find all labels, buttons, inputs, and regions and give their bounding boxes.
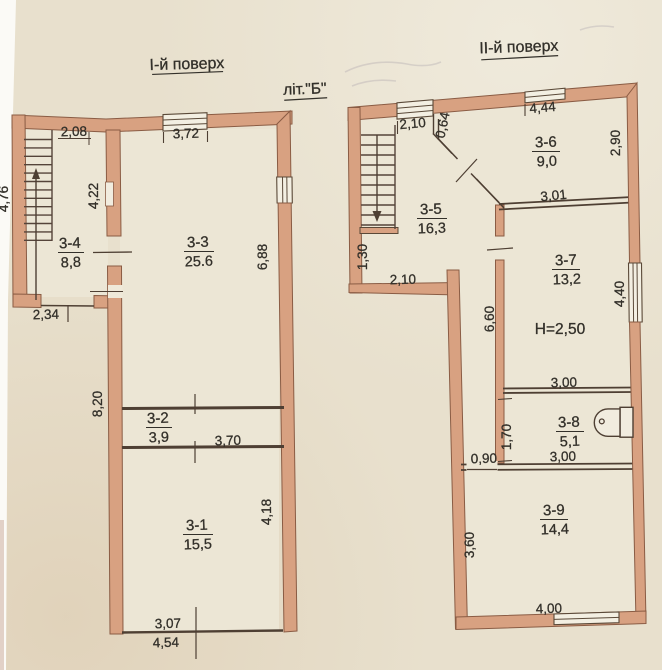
svg-text:2,90: 2,90 (608, 130, 623, 156)
svg-text:3,72: 3,72 (172, 126, 199, 142)
svg-text:6,60: 6,60 (482, 306, 497, 332)
svg-text:14,4: 14,4 (541, 522, 570, 539)
svg-text:4,18: 4,18 (259, 499, 274, 525)
svg-text:4,00: 4,00 (535, 601, 562, 617)
svg-text:4,44: 4,44 (529, 99, 557, 116)
svg-text:H=2,50: H=2,50 (535, 321, 586, 338)
svg-text:3,70: 3,70 (214, 433, 241, 449)
svg-text:3-6: 3-6 (535, 134, 557, 152)
svg-text:2,10: 2,10 (389, 272, 416, 288)
svg-text:2,34: 2,34 (32, 307, 59, 323)
svg-text:3-3: 3-3 (187, 234, 209, 252)
svg-text:3-1: 3-1 (186, 517, 208, 535)
svg-text:6,88: 6,88 (255, 244, 270, 270)
svg-text:літ."Б": літ."Б" (283, 80, 327, 99)
svg-text:25.6: 25.6 (185, 254, 214, 271)
svg-text:3-8: 3-8 (558, 414, 580, 432)
svg-text:3-2: 3-2 (147, 410, 169, 428)
svg-text:3,9: 3,9 (149, 430, 170, 447)
svg-text:3,60: 3,60 (462, 532, 477, 558)
svg-text:4,22: 4,22 (86, 183, 101, 209)
svg-text:8,8: 8,8 (61, 255, 82, 272)
svg-text:3-4: 3-4 (59, 235, 81, 253)
svg-text:І-й поверх: І-й поверх (149, 55, 224, 74)
svg-text:2,08: 2,08 (60, 124, 87, 140)
svg-text:13,2: 13,2 (553, 272, 582, 289)
svg-text:3,00: 3,00 (550, 375, 577, 391)
svg-text:4,40: 4,40 (612, 281, 627, 307)
svg-text:3,07: 3,07 (154, 616, 181, 632)
svg-text:3-7: 3-7 (555, 252, 577, 270)
svg-text:1,70: 1,70 (499, 424, 514, 450)
svg-text:4,54: 4,54 (152, 635, 179, 651)
svg-text:1,30: 1,30 (355, 244, 370, 270)
svg-text:3,00: 3,00 (549, 449, 576, 465)
svg-text:16,3: 16,3 (418, 221, 447, 238)
svg-text:0,90: 0,90 (470, 451, 497, 467)
svg-text:8,20: 8,20 (90, 391, 105, 417)
svg-text:2,10: 2,10 (399, 115, 426, 132)
svg-text:3-5: 3-5 (420, 201, 442, 219)
svg-text:9,0: 9,0 (537, 154, 558, 171)
svg-text:15,5: 15,5 (184, 537, 213, 554)
svg-text:ІІ-й поверх: ІІ-й поверх (479, 38, 559, 58)
svg-text:4,76: 4,76 (0, 186, 11, 212)
svg-text:3,01: 3,01 (540, 187, 568, 204)
svg-text:3-9: 3-9 (543, 502, 565, 520)
